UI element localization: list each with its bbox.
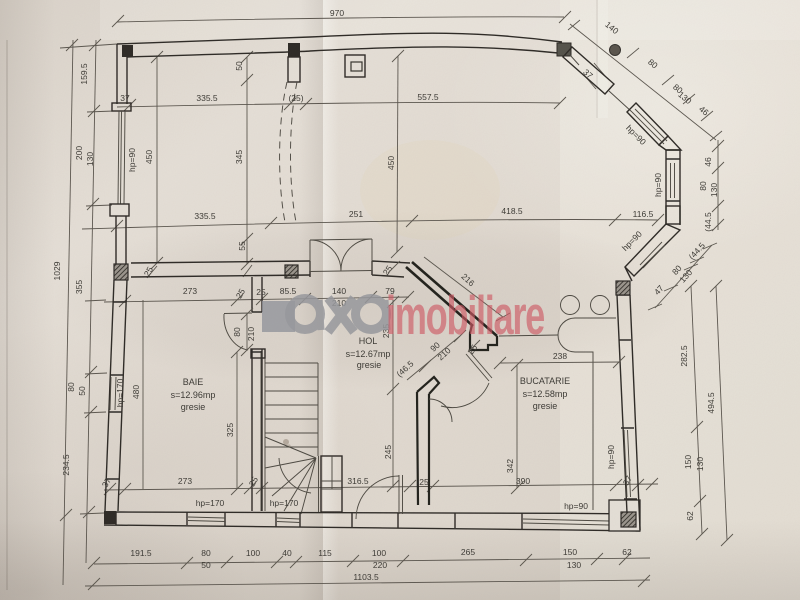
- svg-text:282.5: 282.5: [679, 345, 689, 367]
- svg-text:191.5: 191.5: [130, 548, 152, 558]
- svg-text:hp=90: hp=90: [653, 173, 663, 197]
- svg-text:251: 251: [349, 209, 363, 219]
- svg-text:25: 25: [256, 287, 266, 297]
- svg-text:150: 150: [563, 547, 577, 557]
- svg-text:335.5: 335.5: [196, 93, 218, 103]
- svg-text:BUCATARIE: BUCATARIE: [520, 376, 570, 386]
- svg-text:210: 210: [246, 327, 256, 341]
- svg-text:130: 130: [709, 183, 719, 197]
- svg-text:hp=170: hp=170: [196, 498, 225, 508]
- svg-text:220: 220: [373, 560, 387, 570]
- svg-text:50: 50: [77, 386, 87, 396]
- svg-text:115: 115: [318, 548, 332, 558]
- svg-text:hp=170: hp=170: [115, 378, 125, 407]
- svg-text:130: 130: [567, 560, 581, 570]
- svg-text:gresie: gresie: [357, 360, 382, 370]
- svg-text:355: 355: [74, 280, 84, 294]
- svg-text:hp=90: hp=90: [606, 445, 616, 469]
- svg-text:238: 238: [553, 351, 567, 361]
- svg-text:335.5: 335.5: [194, 211, 216, 221]
- svg-text:390: 390: [516, 476, 530, 486]
- svg-text:1029: 1029: [52, 261, 62, 280]
- svg-text:140: 140: [332, 286, 346, 296]
- svg-text:450: 450: [386, 156, 396, 170]
- svg-text:hp=90: hp=90: [564, 501, 588, 511]
- svg-text:imobiliare: imobiliare: [386, 284, 544, 346]
- svg-text:100: 100: [246, 548, 260, 558]
- svg-text:50: 50: [201, 560, 211, 570]
- svg-text:(44.5: (44.5: [703, 212, 713, 232]
- svg-text:273: 273: [183, 286, 197, 296]
- svg-text:494.5: 494.5: [706, 392, 716, 414]
- svg-text:100: 100: [372, 548, 386, 558]
- svg-text:s=12.67mp: s=12.67mp: [346, 349, 391, 359]
- svg-text:62: 62: [685, 511, 695, 521]
- svg-text:55: 55: [237, 241, 247, 251]
- svg-text:325: 325: [225, 423, 235, 437]
- svg-text:50: 50: [234, 61, 244, 71]
- svg-text:480: 480: [131, 385, 141, 399]
- svg-text:s=12.96mp: s=12.96mp: [171, 390, 216, 400]
- svg-text:130: 130: [695, 457, 705, 471]
- svg-text:hp=90: hp=90: [127, 148, 137, 172]
- svg-text:80: 80: [201, 548, 211, 558]
- svg-text:80: 80: [232, 327, 242, 337]
- svg-text:1103.5: 1103.5: [353, 572, 379, 582]
- svg-text:gresie: gresie: [533, 401, 558, 411]
- svg-text:345: 345: [234, 150, 244, 164]
- svg-text:150: 150: [683, 455, 693, 469]
- svg-text:80: 80: [66, 382, 76, 392]
- svg-text:316.5: 316.5: [347, 476, 369, 486]
- svg-text:BAIE: BAIE: [183, 377, 204, 387]
- svg-text:25: 25: [419, 477, 429, 487]
- svg-text:245: 245: [383, 445, 393, 459]
- svg-text:s=12.58mp: s=12.58mp: [523, 389, 568, 399]
- svg-text:159.5: 159.5: [79, 63, 89, 85]
- svg-text:418.5: 418.5: [501, 206, 523, 216]
- svg-text:80: 80: [698, 181, 708, 191]
- svg-text:970: 970: [330, 8, 344, 18]
- svg-text:85.5: 85.5: [280, 286, 297, 296]
- svg-text:HOL: HOL: [359, 336, 378, 346]
- svg-text:(25): (25): [288, 93, 303, 103]
- svg-text:116.5: 116.5: [633, 209, 654, 219]
- svg-text:gresie: gresie: [181, 402, 206, 412]
- svg-text:557.5: 557.5: [417, 92, 439, 102]
- svg-text:273: 273: [178, 476, 192, 486]
- svg-text:200: 200: [74, 146, 84, 160]
- svg-text:130: 130: [85, 152, 95, 166]
- svg-text:40: 40: [282, 548, 292, 558]
- svg-text:450: 450: [144, 150, 154, 164]
- svg-text:265: 265: [461, 547, 475, 557]
- svg-text:46: 46: [703, 157, 713, 167]
- svg-text:37: 37: [120, 93, 130, 103]
- svg-text:234.5: 234.5: [61, 454, 71, 476]
- svg-text:342: 342: [505, 459, 515, 473]
- svg-text:hp=170: hp=170: [270, 498, 299, 508]
- svg-text:62: 62: [622, 547, 632, 557]
